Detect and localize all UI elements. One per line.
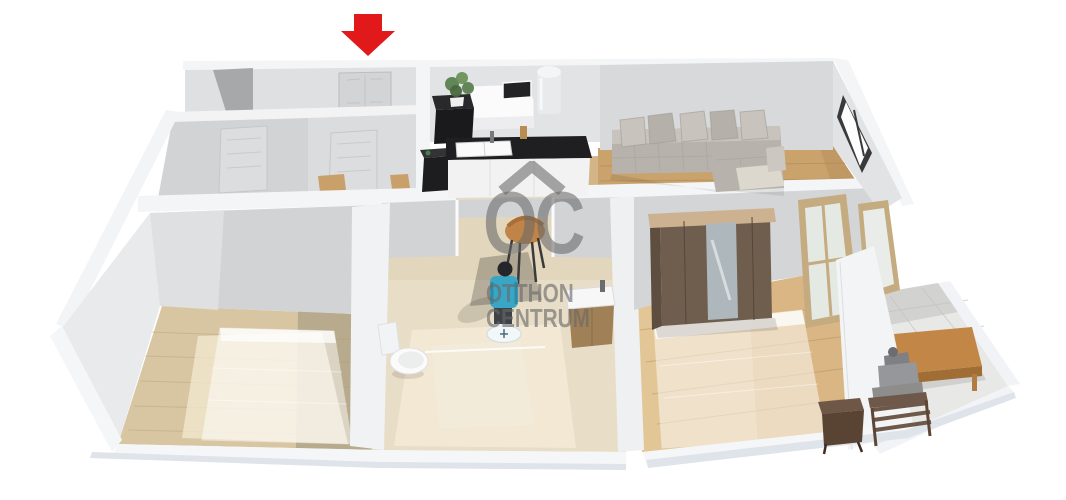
floorplan-scene xyxy=(0,0,1066,500)
water-heater xyxy=(537,66,561,114)
floorplan-render: OC OTTHON CENTRUM xyxy=(0,0,1066,500)
sink-vanity xyxy=(566,280,615,348)
wood-stool xyxy=(390,174,410,189)
wood-stool xyxy=(318,174,346,192)
wardrobe-with-mirror xyxy=(648,208,778,338)
wall-picture xyxy=(503,81,531,99)
bottle xyxy=(520,126,527,139)
faucet xyxy=(490,131,494,143)
interior-door-a xyxy=(219,126,267,193)
left-bedroom-floor xyxy=(118,306,382,450)
